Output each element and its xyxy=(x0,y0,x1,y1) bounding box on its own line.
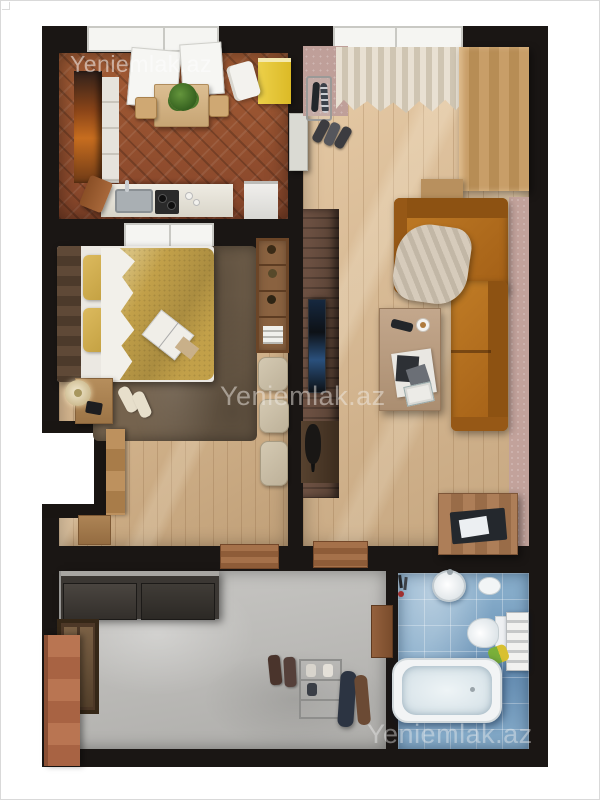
living-door-threshold xyxy=(313,541,368,568)
floor-plan-photo: Yeniemlak.az Yeniemlak.az Yeniemlak.az xyxy=(0,0,600,800)
bedroom-wardrobe xyxy=(106,429,125,515)
shelf-line xyxy=(259,316,286,318)
rack-shelf xyxy=(301,679,340,681)
potted-plant xyxy=(169,83,197,111)
towel-shelf xyxy=(506,612,529,671)
shoe xyxy=(306,664,316,677)
shoe xyxy=(323,664,333,677)
kitchen-hob xyxy=(155,190,179,214)
window-mullion xyxy=(169,225,171,248)
kitchen-appliance xyxy=(244,181,278,219)
umbrella xyxy=(320,83,329,113)
kitchen-cabinet-column xyxy=(74,71,102,183)
sliding-panel xyxy=(141,583,215,620)
book-stack xyxy=(263,326,283,344)
shoe xyxy=(283,657,297,688)
sofa-section xyxy=(451,281,508,431)
pan xyxy=(158,194,167,203)
exterior-notch xyxy=(42,433,94,504)
bottle xyxy=(267,295,276,304)
window-mullion xyxy=(163,28,165,50)
lamp-center xyxy=(74,389,82,397)
mirror-panel xyxy=(80,627,93,707)
shoe xyxy=(307,683,317,696)
entrance-door xyxy=(44,635,80,766)
umbrella xyxy=(311,82,320,112)
kitchen-sink xyxy=(115,189,153,213)
sliding-panel xyxy=(63,583,137,620)
sofa-armrest xyxy=(451,417,508,431)
bottle xyxy=(268,269,277,278)
pan xyxy=(167,201,176,210)
tub-drain xyxy=(470,687,475,692)
bathroom-door xyxy=(371,605,393,658)
bottle xyxy=(267,245,276,254)
stool xyxy=(209,95,229,117)
bed-headboard xyxy=(57,246,81,382)
sofa-backrest xyxy=(394,198,508,218)
dish xyxy=(193,199,200,206)
kitchen-tall-cabinet xyxy=(102,77,119,183)
shelf-line xyxy=(259,290,286,292)
wall-mounted-tv xyxy=(308,299,326,393)
window-mullion xyxy=(395,28,397,48)
toilet-bowl xyxy=(467,618,499,648)
bathtub-basin xyxy=(402,666,492,715)
toiletry-cup xyxy=(398,591,404,597)
sofa-backrest xyxy=(488,281,508,431)
coffee-cup xyxy=(416,318,430,332)
stool xyxy=(135,97,157,119)
living-tall-cabinet xyxy=(459,47,529,191)
shelf-line xyxy=(259,264,286,266)
kitchen-living-door xyxy=(289,113,308,171)
living-sideboard xyxy=(421,179,463,199)
speaker xyxy=(305,424,321,464)
living-room-window xyxy=(333,26,463,50)
pouf xyxy=(258,357,288,391)
bathroom-sink xyxy=(432,570,466,602)
photo-corner-artifact xyxy=(2,2,10,10)
sliding-wardrobe xyxy=(61,571,219,619)
cushion-gap xyxy=(451,350,491,353)
rack-shelf xyxy=(301,699,340,701)
phone xyxy=(85,401,103,416)
sink-faucet xyxy=(447,569,453,575)
apartment-plan-walls xyxy=(42,26,548,767)
yellow-cabinet xyxy=(258,58,291,104)
dish xyxy=(185,192,193,200)
shoe-rack xyxy=(299,659,342,719)
kitchen-faucet xyxy=(125,180,129,192)
coffee xyxy=(420,322,426,328)
bidet xyxy=(478,577,501,595)
dresser xyxy=(78,515,111,545)
pouf xyxy=(260,441,288,486)
umbrella-stand xyxy=(306,76,332,121)
bedroom-door-threshold xyxy=(220,544,279,569)
pouf xyxy=(259,399,289,433)
